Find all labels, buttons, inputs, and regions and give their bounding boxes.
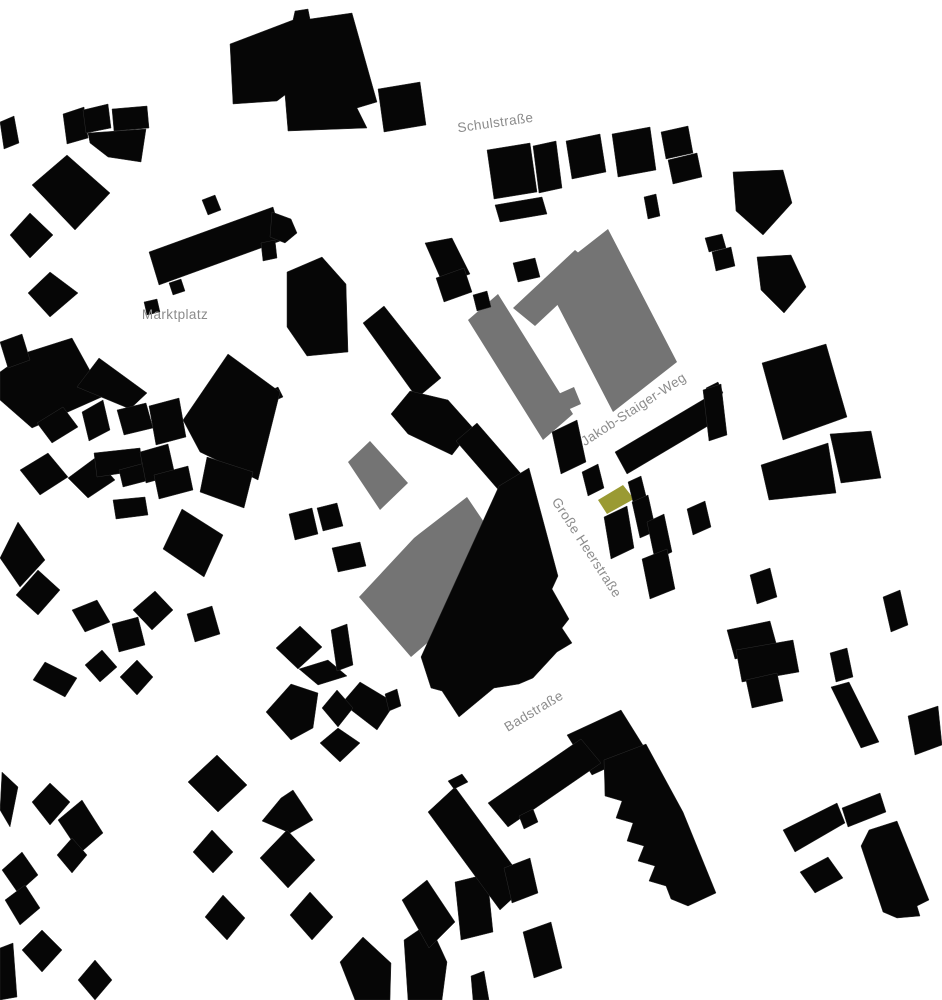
- building-footprint: [861, 821, 929, 918]
- building-footprint: [842, 793, 886, 827]
- building-footprint: [883, 590, 908, 632]
- building-footprint: [120, 660, 153, 695]
- building-footprint: [533, 141, 562, 193]
- building-footprint: [332, 542, 366, 572]
- building-footprint: [830, 648, 853, 682]
- building-footprint: [82, 400, 110, 441]
- building-footprint: [20, 453, 68, 495]
- building-footprint: [78, 960, 112, 1000]
- building-footprint: [22, 930, 62, 972]
- building-footprint: [72, 600, 110, 632]
- building-footprint: [188, 755, 247, 812]
- building-footprint: [800, 857, 843, 893]
- building-footprint: [149, 398, 186, 445]
- building-footprint: [5, 885, 40, 925]
- building-footprint: [317, 503, 343, 531]
- building-footprint: [266, 684, 318, 740]
- building-footprint: [488, 739, 601, 827]
- building-footprint: [28, 272, 78, 317]
- building-footprint: [495, 197, 547, 222]
- building-footprint: [908, 706, 942, 755]
- building-footprint: [276, 626, 322, 669]
- building-footprint: [287, 257, 348, 356]
- building-footprint: [205, 895, 245, 940]
- building-footprint: [113, 497, 148, 519]
- building-footprint: [363, 306, 441, 398]
- highlighted-site-building: [598, 485, 634, 514]
- building-footprint: [10, 213, 53, 258]
- building-footprint: [604, 506, 634, 559]
- building-footprint: [733, 170, 792, 235]
- building-footprint: [830, 431, 881, 483]
- building-footprint: [750, 568, 777, 604]
- building-footprint: [487, 143, 537, 199]
- building-footprint: [757, 255, 806, 313]
- building-footprint: [112, 106, 149, 131]
- building-footprint: [202, 195, 221, 215]
- building-footprint: [644, 194, 660, 219]
- building-footprint: [112, 617, 145, 652]
- street-label-schulstrasse: Schulstraße: [456, 110, 534, 135]
- building-footprint: [88, 129, 146, 162]
- building-footprint: [290, 892, 333, 940]
- building-footprint: [0, 772, 18, 827]
- building-footprint: [513, 258, 540, 282]
- building-footprint: [762, 344, 847, 440]
- building-footprint: [270, 212, 297, 243]
- site-plan-map: SchulstraßeMarktplatzJakob-Staiger-WegGr…: [0, 0, 942, 1000]
- building-footprint: [117, 403, 153, 435]
- street-label-badstrasse: Badstraße: [502, 688, 566, 735]
- figure-ground-plan-canvas: SchulstraßeMarktplatzJakob-Staiger-WegGr…: [0, 0, 942, 1000]
- building-footprint: [183, 354, 280, 480]
- building-footprint: [761, 443, 836, 500]
- building-footprint: [260, 830, 315, 888]
- building-footprint: [687, 501, 711, 535]
- building-footprint: [85, 650, 117, 682]
- building-footprint: [33, 662, 77, 697]
- building-footprint: [566, 134, 606, 179]
- building-footprint: [523, 922, 562, 978]
- building-footprint: [2, 852, 38, 893]
- building-footprint: [642, 549, 675, 599]
- building-footprint: [703, 384, 727, 441]
- building-footprint: [831, 682, 879, 748]
- building-footprint: [320, 728, 360, 762]
- building-footprint: [0, 116, 19, 149]
- building-footprint: [163, 509, 223, 577]
- building-footprint: [612, 127, 656, 177]
- building-footprint: [0, 943, 17, 1000]
- building-footprint: [83, 104, 111, 133]
- building-footprint: [604, 744, 716, 906]
- street-label-marktplatz: Marktplatz: [142, 307, 208, 322]
- building-footprint: [471, 971, 489, 1000]
- building-footprint: [448, 774, 468, 789]
- building-footprint: [378, 82, 426, 132]
- building-footprint: [261, 240, 277, 261]
- building-footprint: [193, 830, 233, 873]
- building-footprint: [289, 508, 318, 540]
- building-footprint: [187, 606, 220, 642]
- building-footprint: [783, 803, 845, 852]
- building-footprint: [473, 291, 491, 311]
- building-footprint: [331, 624, 353, 671]
- building-footprint: [582, 464, 604, 496]
- building-footprint: [661, 126, 693, 159]
- secondary-highlight-building: [468, 294, 573, 440]
- building-footprint: [169, 279, 185, 295]
- building-footprint: [32, 155, 110, 230]
- building-footprint: [340, 937, 391, 1000]
- building-footprint: [230, 9, 377, 131]
- building-footprint: [262, 790, 313, 833]
- building-footprint: [552, 420, 586, 474]
- secondary-highlight-building: [348, 441, 408, 510]
